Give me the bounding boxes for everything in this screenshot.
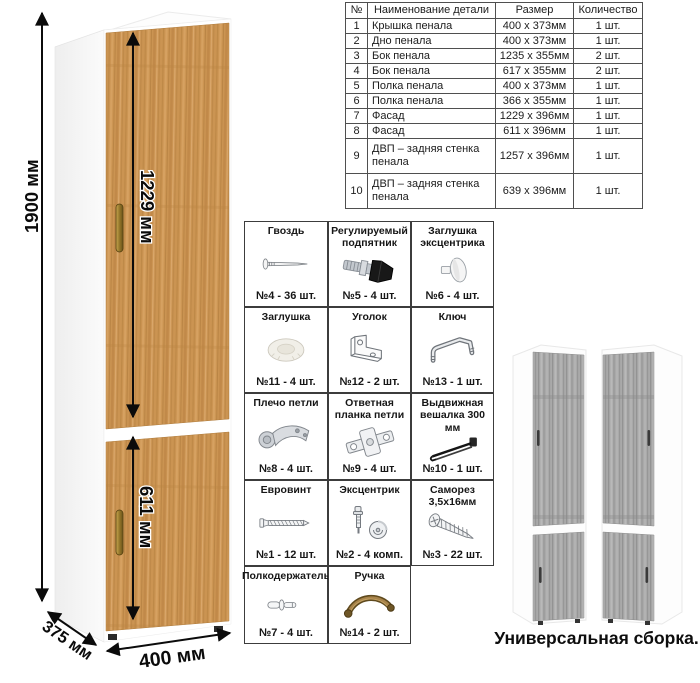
variant-handle bbox=[646, 567, 649, 583]
variant-handle bbox=[539, 567, 542, 583]
cap-icon bbox=[253, 323, 319, 376]
dim-label-height: 1900 мм bbox=[21, 159, 42, 233]
hardware-item-self-tapping-screw: Саморез 3,5х16мм №3 - 22 шт. bbox=[411, 480, 494, 566]
table-row: 2Дно пенала400 х 373мм1 шт. bbox=[346, 34, 643, 49]
variants-caption: Универсальная сборка. bbox=[493, 628, 700, 649]
cam-lock-icon bbox=[337, 496, 403, 549]
table-header-row: № Наименование детали Размер Количество bbox=[346, 3, 643, 19]
col-part-name: Наименование детали bbox=[368, 3, 496, 19]
table-row: 7Фасад1229 х 396мм1 шт. bbox=[346, 109, 643, 124]
euro-screw-icon bbox=[253, 496, 319, 549]
table-row: 10ДВП – задняя стенка пенала639 х 396мм1… bbox=[346, 174, 643, 209]
hardware-item-pullout-hanger: Выдвижная вешалка 300 мм №10 - 1 шт. bbox=[411, 393, 494, 480]
table-row: 1Крышка пенала400 х 373мм1 шт. bbox=[346, 19, 643, 34]
col-qty: Количество bbox=[574, 3, 643, 19]
upper-door-handle bbox=[116, 204, 123, 252]
table-row: 6Полка пенала366 х 355мм1 шт. bbox=[346, 94, 643, 109]
hardware-item-cam-lock: Эксцентрик №2 - 4 комп. bbox=[328, 480, 411, 566]
variant-cabinet-right bbox=[602, 345, 682, 625]
shelf-pin-icon bbox=[253, 582, 319, 627]
pullout-hanger-icon bbox=[420, 434, 486, 463]
table-row: 8Фасад611 х 396мм1 шт. bbox=[346, 124, 643, 139]
hardware-item-hex-key: Ключ №13 - 1 шт. bbox=[411, 307, 494, 393]
cabinet-illustration: 1900 мм 1229 мм 611 мм 375 мм 400 мм bbox=[0, 0, 250, 683]
hardware-grid: Гвоздь №4 - 36 шт. Регулируемый подпятни… bbox=[244, 221, 494, 644]
lower-door bbox=[106, 432, 229, 631]
table-row: 5Полка пенала400 х 373мм1 шт. bbox=[346, 79, 643, 94]
self-tapping-screw-icon bbox=[420, 509, 486, 549]
col-number: № bbox=[346, 3, 368, 19]
variant-handle bbox=[648, 430, 651, 446]
hardware-item-hinge-arm: Плечо петли №8 - 4 шт. bbox=[244, 393, 328, 480]
hardware-item-euro-screw: Евровинт №1 - 12 шт. bbox=[244, 480, 328, 566]
cabinet-foot bbox=[108, 634, 117, 640]
hardware-item-hinge-plate: Ответная планка петли №9 - 4 шт. bbox=[328, 393, 411, 480]
hardware-item-cam-cover: Заглушка эксцентрика №6 - 4 шт. bbox=[411, 221, 494, 307]
lower-door-handle bbox=[116, 510, 123, 555]
nail-icon bbox=[253, 237, 319, 290]
cam-cover-icon bbox=[420, 250, 486, 290]
variant-cabinet-left bbox=[513, 345, 586, 625]
table-row: 3Бок пенала1235 х 355мм2 шт. bbox=[346, 49, 643, 64]
col-size: Размер bbox=[496, 3, 574, 19]
hardware-item-pull-handle: Ручка №14 - 2 шт. bbox=[328, 566, 411, 644]
hex-key-icon bbox=[420, 323, 486, 376]
table-row: 4Бок пенала617 х 355мм2 шт. bbox=[346, 64, 643, 79]
upper-door bbox=[106, 23, 229, 429]
variant-handle bbox=[537, 430, 540, 446]
hardware-item-cap: Заглушка №11 - 4 шт. bbox=[244, 307, 328, 393]
hardware-item-adjustable-foot: Регулируемый подпятник №5 - 4 шт. bbox=[328, 221, 411, 307]
dim-label-lower-door: 611 мм bbox=[136, 486, 157, 548]
hardware-item-angle-bracket: Уголок №12 - 2 шт. bbox=[328, 307, 411, 393]
cabinet-foot bbox=[214, 626, 223, 632]
adjustable-foot-icon bbox=[337, 250, 403, 290]
assembly-scheme-page: 1900 мм 1229 мм 611 мм 375 мм 400 мм № Н… bbox=[0, 0, 700, 683]
pull-handle-icon bbox=[337, 582, 403, 627]
hardware-item-nail: Гвоздь №4 - 36 шт. bbox=[244, 221, 328, 307]
parts-table: № Наименование детали Размер Количество … bbox=[345, 2, 643, 209]
dim-label-upper-door: 1229 мм bbox=[137, 170, 158, 244]
cabinet-side-panel bbox=[55, 30, 104, 642]
hinge-plate-icon bbox=[337, 422, 403, 463]
table-row: 9ДВП – задняя стенка пенала1257 х 396мм1… bbox=[346, 139, 643, 174]
hinge-arm-icon bbox=[253, 409, 319, 463]
angle-bracket-icon bbox=[337, 323, 403, 376]
variant-cabinets-illustration bbox=[495, 340, 700, 628]
hardware-item-shelf-pin: Полкодержатель №7 - 4 шт. bbox=[244, 566, 328, 644]
dim-label-width: 400 мм bbox=[138, 642, 207, 673]
